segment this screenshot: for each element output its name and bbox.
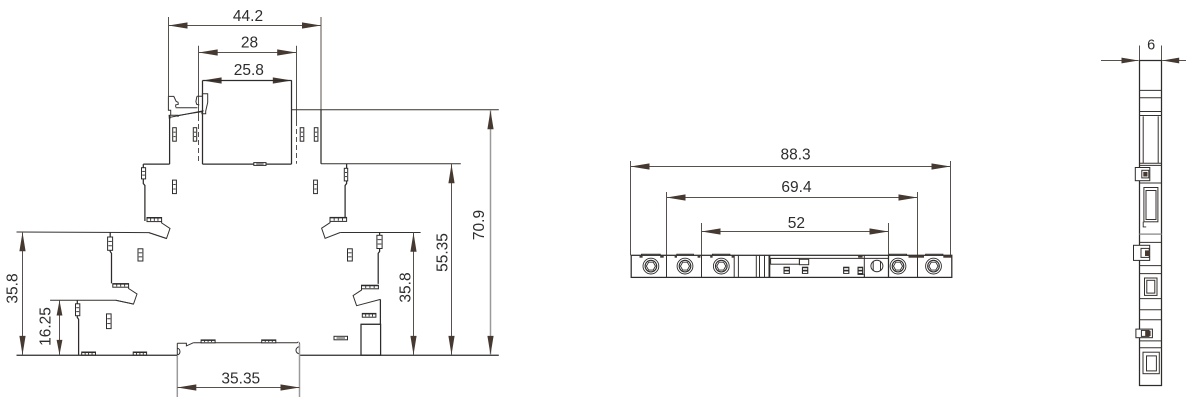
svg-text:16.25: 16.25 xyxy=(38,307,55,346)
svg-text:44.2: 44.2 xyxy=(233,8,263,25)
svg-text:35.8: 35.8 xyxy=(398,272,415,302)
svg-text:69.4: 69.4 xyxy=(781,179,812,196)
svg-text:88.3: 88.3 xyxy=(781,147,811,164)
svg-text:25.8: 25.8 xyxy=(234,62,264,79)
svg-text:52: 52 xyxy=(788,215,805,232)
svg-text:28: 28 xyxy=(241,35,258,52)
svg-text:55.35: 55.35 xyxy=(435,233,452,272)
svg-text:35.35: 35.35 xyxy=(221,371,260,388)
svg-text:6: 6 xyxy=(1147,38,1155,54)
svg-text:70.9: 70.9 xyxy=(471,210,488,240)
svg-text:35.8: 35.8 xyxy=(5,273,22,303)
